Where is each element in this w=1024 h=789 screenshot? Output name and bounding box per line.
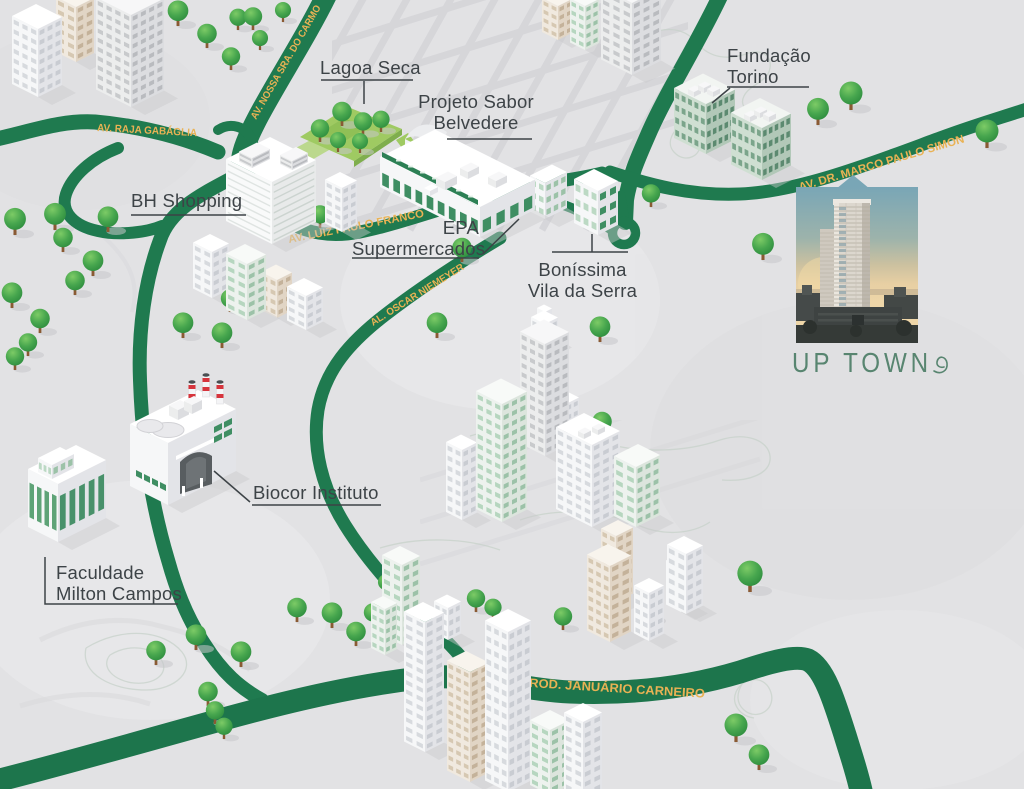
label-fundacao-torino: Fundação Torino xyxy=(727,45,811,87)
label-projeto-sabor-belvedere: Projeto Sabor Belvedere xyxy=(416,91,536,133)
label-faculdade-milton-campos: Faculdade Milton Campos xyxy=(56,562,182,604)
label-bonissima-vila-da-serra: Boníssima Vila da Serra xyxy=(525,259,640,301)
poi-name: Lagoa Seca xyxy=(320,57,415,78)
label-epa-supermercados: EPA Supermercados xyxy=(352,217,479,259)
label-biocor-instituto: Biocor Instituto xyxy=(253,482,379,503)
uptown-logo-swoosh-icon xyxy=(934,357,947,372)
uptown-logo-text: UP TOWN xyxy=(792,347,932,378)
label-bh-shopping: BH Shopping xyxy=(131,190,242,211)
uptown-logo: UP TOWN xyxy=(788,342,963,389)
label-lagoa-seca: Lagoa Seca xyxy=(320,57,415,78)
uptown-building-photo xyxy=(796,187,918,343)
map-canvas: AV. RAJA GABÁGLIA AV. NOSSA SRA. DO CARM… xyxy=(0,0,1024,789)
